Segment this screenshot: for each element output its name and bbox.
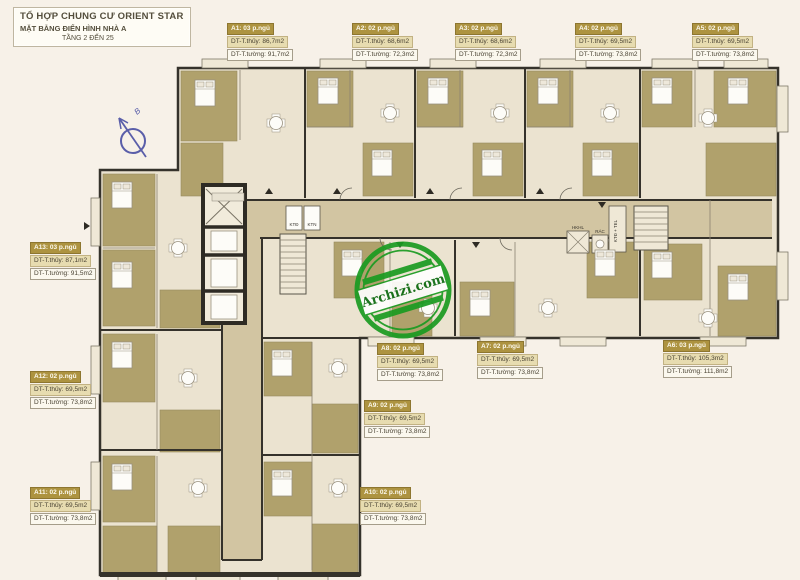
unit-id: A13: 03 p.ngủ (30, 242, 81, 254)
unit-id: A6: 03 p.ngủ (663, 340, 710, 352)
north-arrow: B (119, 106, 146, 157)
unit-id: A12: 02 p.ngủ (30, 371, 81, 383)
unit-id: A3: 02 p.ngủ (455, 23, 502, 35)
unit-label-a2: A2: 02 p.ngủ DT-T.thủy: 68,6m2 DT-T.tườn… (352, 23, 418, 62)
unit-id: A8: 02 p.ngủ (377, 343, 424, 355)
unit-gross-area: DT-T.tường: 73,8m2 (30, 513, 96, 525)
unit-net-area: DT-T.thủy: 69,5m2 (30, 500, 91, 512)
unit-net-area: DT-T.thủy: 105,3m2 (663, 353, 728, 365)
unit-label-a7: A7: 02 p.ngủ DT-T.thủy: 69,5m2 DT-T.tườn… (477, 341, 543, 380)
unit-id: A4: 02 p.ngủ (575, 23, 622, 35)
unit-label-a9: A9: 02 p.ngủ DT-T.thủy: 69,5m2 DT-T.tườn… (364, 400, 430, 439)
shaft-ktn-label: KTN (308, 222, 317, 227)
floor-range: TẦNG 2 ĐẾN 25 (62, 35, 184, 42)
unit-gross-area: DT-T.tường: 91,5m2 (30, 268, 96, 280)
north-label: B (133, 106, 143, 117)
unit-label-a4: A4: 02 p.ngủ DT-T.thủy: 69,5m2 DT-T.tườn… (575, 23, 641, 62)
shaft-ktn: KTN (304, 206, 320, 230)
unit-id: A7: 02 p.ngủ (477, 341, 524, 353)
title-block: TỔ HỢP CHUNG CƯ ORIENT STAR MẶT BẰNG ĐIỂ… (13, 7, 191, 47)
unit-net-area: DT-T.thủy: 86,7m2 (227, 36, 288, 48)
unit-label-a8: A8: 02 p.ngủ DT-T.thủy: 69,5m2 DT-T.tườn… (377, 343, 443, 382)
unit-net-area: DT-T.thủy: 69,5m2 (575, 36, 636, 48)
shaft-hkhl-label: HKHL (572, 225, 585, 230)
shaft-rac-label: RÁC (595, 228, 605, 234)
unit-gross-area: DT-T.tường: 91,7m2 (227, 49, 293, 61)
unit-label-a11: A11: 02 p.ngủ DT-T.thủy: 69,5m2 DT-T.tườ… (30, 487, 96, 526)
unit-net-area: DT-T.thủy: 68,6m2 (352, 36, 413, 48)
unit-net-area: DT-T.thủy: 69,5m2 (360, 500, 421, 512)
floorplan-canvas: KTĐ KTN HKHL RÁC KTĐ + TEL (0, 0, 800, 580)
unit-label-a5: A5: 02 p.ngủ DT-T.thủy: 69,5m2 DT-T.tườn… (692, 23, 758, 62)
elevator-core (203, 185, 245, 323)
unit-id: A5: 02 p.ngủ (692, 23, 739, 35)
unit-gross-area: DT-T.tường: 72,3m2 (455, 49, 521, 61)
unit-id: A2: 02 p.ngủ (352, 23, 399, 35)
unit-net-area: DT-T.thủy: 68,6m2 (455, 36, 516, 48)
plan-subtitle: MẶT BẰNG ĐIỂN HÌNH NHÀ A (20, 24, 184, 33)
unit-gross-area: DT-T.tường: 73,8m2 (364, 426, 430, 438)
unit-net-area: DT-T.thủy: 69,5m2 (30, 384, 91, 396)
project-title: TỔ HỢP CHUNG CƯ ORIENT STAR (20, 11, 184, 22)
unit-gross-area: DT-T.tường: 73,8m2 (692, 49, 758, 61)
unit-id: A1: 03 p.ngủ (227, 23, 274, 35)
unit-gross-area: DT-T.tường: 73,8m2 (30, 397, 96, 409)
unit-gross-area: DT-T.tường: 73,8m2 (575, 49, 641, 61)
unit-gross-area: DT-T.tường: 73,8m2 (360, 513, 426, 525)
unit-label-a3: A3: 02 p.ngủ DT-T.thủy: 68,6m2 DT-T.tườn… (455, 23, 521, 62)
unit-net-area: DT-T.thủy: 87,1m2 (30, 255, 91, 267)
unit-id: A9: 02 p.ngủ (364, 400, 411, 412)
unit-net-area: DT-T.thủy: 69,5m2 (692, 36, 753, 48)
unit-net-area: DT-T.thủy: 69,5m2 (364, 413, 425, 425)
unit-label-a12: A12: 02 p.ngủ DT-T.thủy: 69,5m2 DT-T.tườ… (30, 371, 96, 410)
unit-gross-area: DT-T.tường: 111,8m2 (663, 366, 732, 378)
shaft-ktd-label: KTĐ (290, 222, 300, 227)
bottom-wall (100, 572, 360, 577)
unit-net-area: DT-T.thủy: 69,5m2 (477, 354, 538, 366)
shaft-ktd-tel-label: KTĐ + TEL (613, 219, 618, 242)
unit-label-a1: A1: 03 p.ngủ DT-T.thủy: 86,7m2 DT-T.tườn… (227, 23, 293, 62)
unit-label-a13: A13: 03 p.ngủ DT-T.thủy: 87,1m2 DT-T.tườ… (30, 242, 96, 281)
unit-gross-area: DT-T.tường: 73,8m2 (377, 369, 443, 381)
unit-label-a10: A10: 02 p.ngủ DT-T.thủy: 69,5m2 DT-T.tườ… (360, 487, 426, 526)
staircase-right (634, 206, 668, 250)
staircase-left (280, 234, 306, 294)
unit-id: A10: 02 p.ngủ (360, 487, 411, 499)
unit-label-a6: A6: 03 p.ngủ DT-T.thủy: 105,3m2 DT-T.tườ… (663, 340, 732, 379)
shaft-ktd-tel: KTĐ + TEL (609, 206, 626, 252)
unit-id: A11: 02 p.ngủ (30, 487, 80, 499)
unit-gross-area: DT-T.tường: 73,8m2 (477, 367, 543, 379)
unit-gross-area: DT-T.tường: 72,3m2 (352, 49, 418, 61)
shaft-ktd: KTĐ (286, 206, 302, 230)
unit-net-area: DT-T.thủy: 69,5m2 (377, 356, 438, 368)
